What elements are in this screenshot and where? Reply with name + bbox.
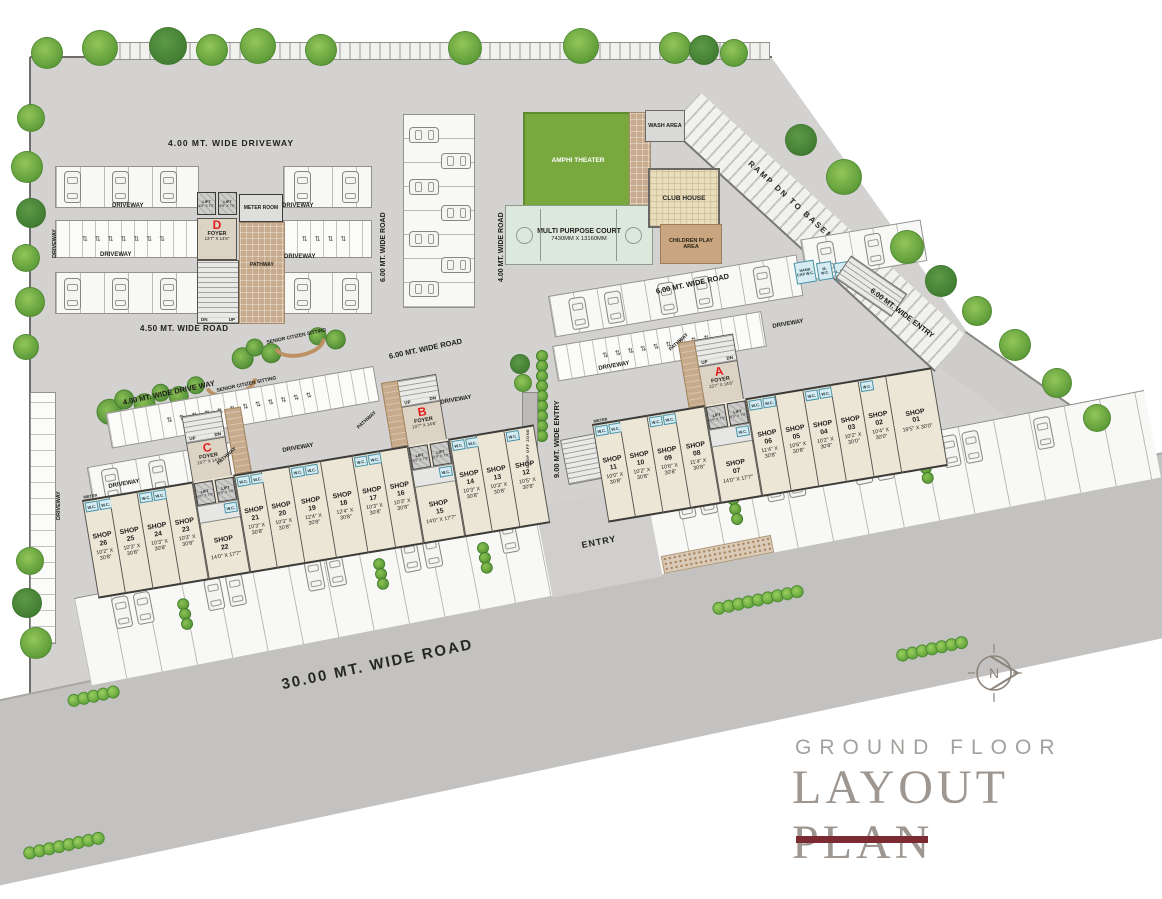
lift-icon: LIFT6'5" X 7'0" [194, 480, 217, 506]
car-icon [160, 171, 177, 203]
meter-room: METER ROOM [239, 194, 283, 222]
shop-dims: 14'0" X 17'7" [210, 550, 243, 561]
road-label: 6.00 MT. WIDE ROAD [380, 212, 387, 282]
wc-pair: W.C.W.C. [649, 413, 677, 427]
wc-box: W.C. [506, 430, 520, 442]
bush-cluster [177, 599, 195, 631]
foyer-d-core: LIFT6'5" X 7'0" LIFT6'5" X 7'0" METER RO… [197, 160, 283, 327]
shop-dims: 10'2" X 30'8" [812, 436, 841, 453]
wc-box: W.C. [594, 424, 608, 436]
lift-icon: LIFT6'5" X 7'0" [409, 444, 432, 470]
court-line [540, 209, 541, 261]
court-dims: 7430MM X 13160MM [551, 236, 606, 242]
meter-room-label: METER ROOM [244, 205, 278, 211]
car-icon [603, 290, 625, 324]
shop-dims: 14'0" X 17'7" [425, 514, 458, 525]
shop-dims: 12'4" X 30'8" [329, 506, 362, 523]
shop-dims: 19'5" X 30'0" [901, 423, 934, 434]
amphi-label: AMPHI THEATER [552, 157, 605, 164]
car-icon [342, 278, 359, 310]
up-label: UP [701, 359, 708, 365]
tree-icon [12, 588, 42, 618]
meter-label: METER [83, 492, 98, 499]
tree-icon [1042, 368, 1072, 398]
bush-cluster [476, 543, 494, 575]
shop-number: 02 [875, 419, 884, 428]
road-hedge [898, 635, 969, 662]
shop-dims: 10'3" X 30'8" [243, 522, 271, 539]
tree-icon [659, 32, 691, 64]
wc-pair: W.C.W.C. [805, 387, 833, 401]
car-icon [294, 171, 311, 203]
road-label: 9.00 MT. WIDE ENTRY [552, 400, 561, 478]
shop-dims: 10'6" X 30'8" [656, 462, 685, 479]
shop-number: 16 [397, 490, 406, 499]
driveway-label: DRIVEWAY [284, 254, 315, 260]
pathway-d [239, 222, 285, 324]
wc-box: W.C. [762, 396, 776, 408]
bike-stall-arrows: ⇅⇅⇅⇅ [302, 235, 353, 243]
car-icon [441, 257, 471, 273]
foyer-d-letter: D [198, 219, 236, 231]
tree-icon [11, 151, 43, 183]
car-icon [568, 296, 590, 330]
shop-number: 20 [278, 510, 287, 519]
multi-purpose-court: MULTI PURPOSE COURT 7430MM X 13160MM [505, 205, 653, 265]
shop-number: 14 [466, 478, 475, 487]
up-label: UP [229, 317, 235, 322]
court-circle [516, 227, 533, 244]
wc-box: W.C. [860, 380, 874, 392]
shop-number: 17 [369, 495, 378, 504]
tree-icon [12, 244, 40, 272]
shop-number: 26 [99, 540, 108, 549]
title-pre: GROUND FLOOR [795, 736, 1063, 760]
tree-icon [563, 28, 599, 64]
foyer-a: A FOYER 13'7" X 14'6" [699, 361, 743, 405]
wc-box: W.C. [224, 502, 238, 514]
wc-box: W.C. [291, 466, 305, 478]
tree-icon [510, 354, 530, 374]
tree-icon [785, 124, 817, 156]
car-icon [64, 278, 81, 310]
lift-dims: 6'5" X 7'0" [218, 489, 234, 496]
up-label: UP [404, 399, 411, 405]
wc-pair: W.C. [506, 430, 520, 442]
car-icon [409, 127, 439, 143]
shop-number: 23 [182, 526, 191, 535]
shop-number: 19 [308, 505, 317, 514]
shop-number: 15 [435, 507, 444, 516]
shop-dims: 10'3" X 30'8" [146, 538, 175, 555]
shop-dims: 10'3" X 30'8" [458, 486, 486, 503]
tree-icon [82, 30, 118, 66]
shop-dims: 10'3" X 30'8" [270, 517, 299, 534]
meter-label: METER [593, 416, 608, 423]
lift-dims: 6'5" X 7'0" [730, 412, 746, 419]
shop-number: 11 [609, 464, 617, 473]
bush-cluster [372, 559, 390, 591]
north-arrow: N [962, 638, 1032, 713]
shop-number: 08 [693, 450, 702, 459]
tree-icon [999, 329, 1031, 361]
shop-dims: 10'0" X 30'8" [602, 471, 630, 488]
entry-label: ENTRY [581, 534, 617, 551]
court-circle [625, 227, 642, 244]
parking-row [55, 166, 199, 208]
lift-dims: 6'5" X 7'0" [433, 453, 449, 460]
tree-icon [925, 265, 957, 297]
shop-number: 06 [764, 438, 773, 447]
car-icon [225, 573, 248, 608]
bush-icon [180, 617, 194, 631]
amphi-theater: AMPHI THEATER [523, 112, 633, 209]
road-hedge [25, 831, 106, 860]
driveway-label: DRIVEWAY [282, 203, 313, 209]
dn-label: DN [429, 395, 436, 401]
vertical-parking-strip [403, 114, 475, 308]
car-icon [64, 171, 81, 203]
wc-pair: W.C.W.C. [84, 498, 112, 512]
north-letter: N [989, 665, 999, 681]
bush-icon [921, 471, 935, 485]
wc-pair: W.C.W.C. [354, 453, 382, 467]
lift-dims: 6'5" X 7'0" [197, 492, 213, 499]
tree-icon [305, 34, 337, 66]
tree-icon [826, 159, 862, 195]
shop-number: 24 [154, 531, 163, 540]
wc-pair: W.C.W.C. [139, 489, 167, 503]
tree-icon [17, 104, 45, 132]
shop-dims: 12'4" X 30'8" [298, 512, 331, 529]
bush-icon [324, 328, 348, 352]
lift-icon: LIFT6'5" X 7'0" [218, 192, 237, 215]
wc-box: W.C. [139, 491, 153, 503]
page-title: LAYOUT PLAN [792, 760, 1162, 870]
car-icon [961, 430, 984, 465]
stairs-d: DNUP [197, 260, 239, 324]
shop-number: 13 [493, 474, 502, 483]
lift-icon: LIFT6'5" X 7'0" [214, 477, 237, 503]
shop-number: 07 [732, 467, 741, 476]
car-icon [409, 179, 439, 195]
shop-dims: 10'2" X 30'8" [628, 466, 657, 483]
tree-icon [31, 37, 63, 69]
wc-box: W.C. [748, 399, 762, 411]
car-icon [863, 232, 885, 266]
car-icon [409, 231, 439, 247]
wc-box: W.C. [304, 464, 318, 476]
road-hedge [714, 584, 805, 615]
tree-icon [1083, 404, 1111, 432]
road-label: 4.00 MT. WIDE ROAD [498, 212, 505, 282]
shop-dims: 10'3" X 30'8" [361, 502, 390, 519]
tree-icon [149, 27, 187, 65]
parking-row [283, 272, 372, 314]
road-30-label: 30.00 MT. WIDE ROAD [280, 636, 475, 693]
car-icon [409, 281, 439, 297]
lift-dims: 6'5" X 7'0" [199, 204, 215, 208]
wc-box: W.C. [451, 439, 465, 451]
car-icon [160, 278, 177, 310]
mens-wc-label: M. W.C. [818, 266, 832, 276]
parking-row [283, 166, 372, 208]
shop-dims: 10'3" X 30'8" [173, 533, 202, 550]
car-icon [203, 577, 226, 612]
tree-icon [196, 34, 228, 66]
children-label: CHILDREN PLAY AREA [661, 238, 721, 250]
shop-dims: 14'0" X 17'7" [722, 474, 755, 485]
shop-dims: 10'2" X 30'8" [92, 547, 120, 564]
club-house: CLUB HOUSE [648, 168, 720, 228]
lift-icon: LIFT6'5" X 7'0" [430, 441, 453, 467]
title-underline [796, 836, 928, 843]
wc-pair: W.C.W.C. [748, 396, 776, 410]
wc-box: W.C. [236, 475, 250, 487]
handicap-wc: HAND CAP W.C. [794, 260, 817, 285]
tree-icon [962, 296, 992, 326]
bike-stall-arrows: ⇅⇅⇅⇅⇅⇅⇅ [82, 235, 172, 243]
wc-pair: W.C.W.C. [236, 473, 264, 487]
car-icon [111, 595, 134, 630]
shop-dims: 10'3" X 30'8" [388, 497, 417, 514]
shop-number: 01 [912, 416, 921, 425]
tree-icon [448, 31, 482, 65]
shop-dims: 11'4" X 30'8" [755, 445, 785, 462]
club-label: CLUB HOUSE [663, 195, 706, 202]
tree-icon [689, 35, 719, 65]
tree-icon [720, 39, 748, 67]
children-play-area: CHILDREN PLAY AREA [660, 224, 722, 264]
tree-icon [890, 230, 924, 264]
bush-icon [376, 577, 390, 591]
bush-icon [480, 561, 494, 575]
lift-dims: 6'5" X 7'0" [709, 416, 725, 423]
shop-number: 05 [792, 433, 801, 442]
shop-dims: 10'2" X 30'0" [839, 431, 868, 448]
shop-number: 12 [522, 469, 531, 478]
court-label: MULTI PURPOSE COURT [537, 228, 621, 235]
wc-pair: W.C. [860, 380, 874, 392]
shop-dims: 10'6" X 30'8" [784, 440, 813, 457]
wc-pair: W.C.W.C. [594, 422, 622, 436]
wc-box: W.C. [805, 389, 819, 401]
lift-icon: LIFT6'5" X 7'0" [197, 192, 216, 215]
dn-label: DN [201, 317, 208, 322]
lift-dims: 6'5" X 7'0" [412, 456, 428, 463]
handicap-wc-label: HAND CAP W.C. [796, 267, 815, 278]
shop-number: 21 [251, 514, 260, 523]
wc-box: W.C. [439, 466, 453, 478]
wc-box: W.C. [354, 455, 368, 467]
shop-dims: 10'3" X 30'8" [485, 481, 514, 498]
tree-icon [16, 547, 44, 575]
tree-icon [20, 627, 52, 659]
shop-number: 18 [339, 500, 348, 509]
lift-icon: LIFT6'5" X 7'0" [706, 404, 729, 430]
car-icon [441, 205, 471, 221]
dn-label: DN [726, 355, 733, 361]
layout-plan-canvas: RAMP DN TO BASEMENT 30.00 MT. WIDE ROAD [0, 0, 1162, 899]
car-icon [441, 153, 471, 169]
driveway-label: DRIVEWAY [56, 491, 62, 520]
shop-number: 04 [820, 429, 829, 438]
road-hedge [69, 684, 121, 707]
shop-number: 09 [664, 455, 673, 464]
driveway-label: DRIVEWAY [100, 252, 131, 258]
tree-icon [240, 28, 276, 64]
driveway-label: DRIVEWAY [112, 203, 143, 209]
shop-number: 10 [636, 459, 645, 468]
lift-dims: 6'5" X 7'0" [220, 204, 236, 208]
wc-box: W.C. [736, 425, 750, 437]
wc-box: W.C. [649, 415, 663, 427]
drop-off-label: DROP OFF ZONE [525, 429, 530, 468]
tree-icon [16, 198, 46, 228]
car-icon [342, 171, 359, 203]
shop-dims: 11'4" X 30'8" [683, 457, 714, 474]
shop-dims: 10'3" X 30'8" [118, 542, 147, 559]
foyer-d: D FOYER 13'7" X 14'6" [197, 218, 237, 260]
tree-icon [13, 334, 39, 360]
wc-pair: W.C.W.C. [451, 437, 479, 451]
car-icon [132, 591, 155, 626]
mens-wc: M. W.C. [816, 261, 834, 281]
shop-number: 03 [847, 424, 856, 433]
tree-icon [15, 287, 45, 317]
shop-dims: 10'5" X 30'8" [513, 476, 544, 493]
car-icon [112, 171, 129, 203]
car-icon [752, 265, 774, 299]
bush-icon [730, 512, 744, 526]
shop-number: 25 [126, 535, 135, 544]
road-label: 4.50 MT. WIDE ROAD [140, 324, 229, 333]
wash-label: WASH AREA [648, 123, 681, 129]
wing-d-block: ⇅⇅⇅⇅⇅⇅⇅ ⇅⇅⇅⇅ LIFT6'5" X 7'0" LIFT6'5" X … [55, 160, 370, 327]
court-line [616, 209, 617, 261]
car-icon [294, 278, 311, 310]
wc-pair: W.C.W.C. [291, 464, 319, 478]
wc-box: W.C. [84, 500, 98, 512]
lift-bank: LIFT6'5" X 7'0" LIFT6'5" X 7'0" [197, 190, 237, 215]
car-icon [1032, 416, 1055, 451]
parking-row [55, 272, 199, 314]
up-label: UP [189, 435, 196, 441]
shop-dims: 10'4" X 30'0" [867, 426, 896, 443]
tree-icon [514, 374, 532, 392]
driveway-label: DRIVEWAY [52, 229, 58, 258]
lift-icon: LIFT6'5" X 7'0" [726, 400, 749, 426]
car-icon [112, 278, 129, 310]
pathway-label: PATHWAY [250, 262, 274, 268]
road-label: 4.00 MT. WIDE DRIVEWAY [168, 138, 294, 148]
wash-area: WASH AREA [645, 110, 685, 142]
dn-label: DN [214, 431, 221, 437]
shop-number: 22 [220, 543, 229, 552]
bike-parking-row: ⇅⇅⇅⇅ [283, 220, 372, 258]
foyer-dims: 13'7" X 14'6" [198, 237, 236, 242]
foyer-b: B FOYER 13'7" X 14'6" [402, 402, 446, 446]
